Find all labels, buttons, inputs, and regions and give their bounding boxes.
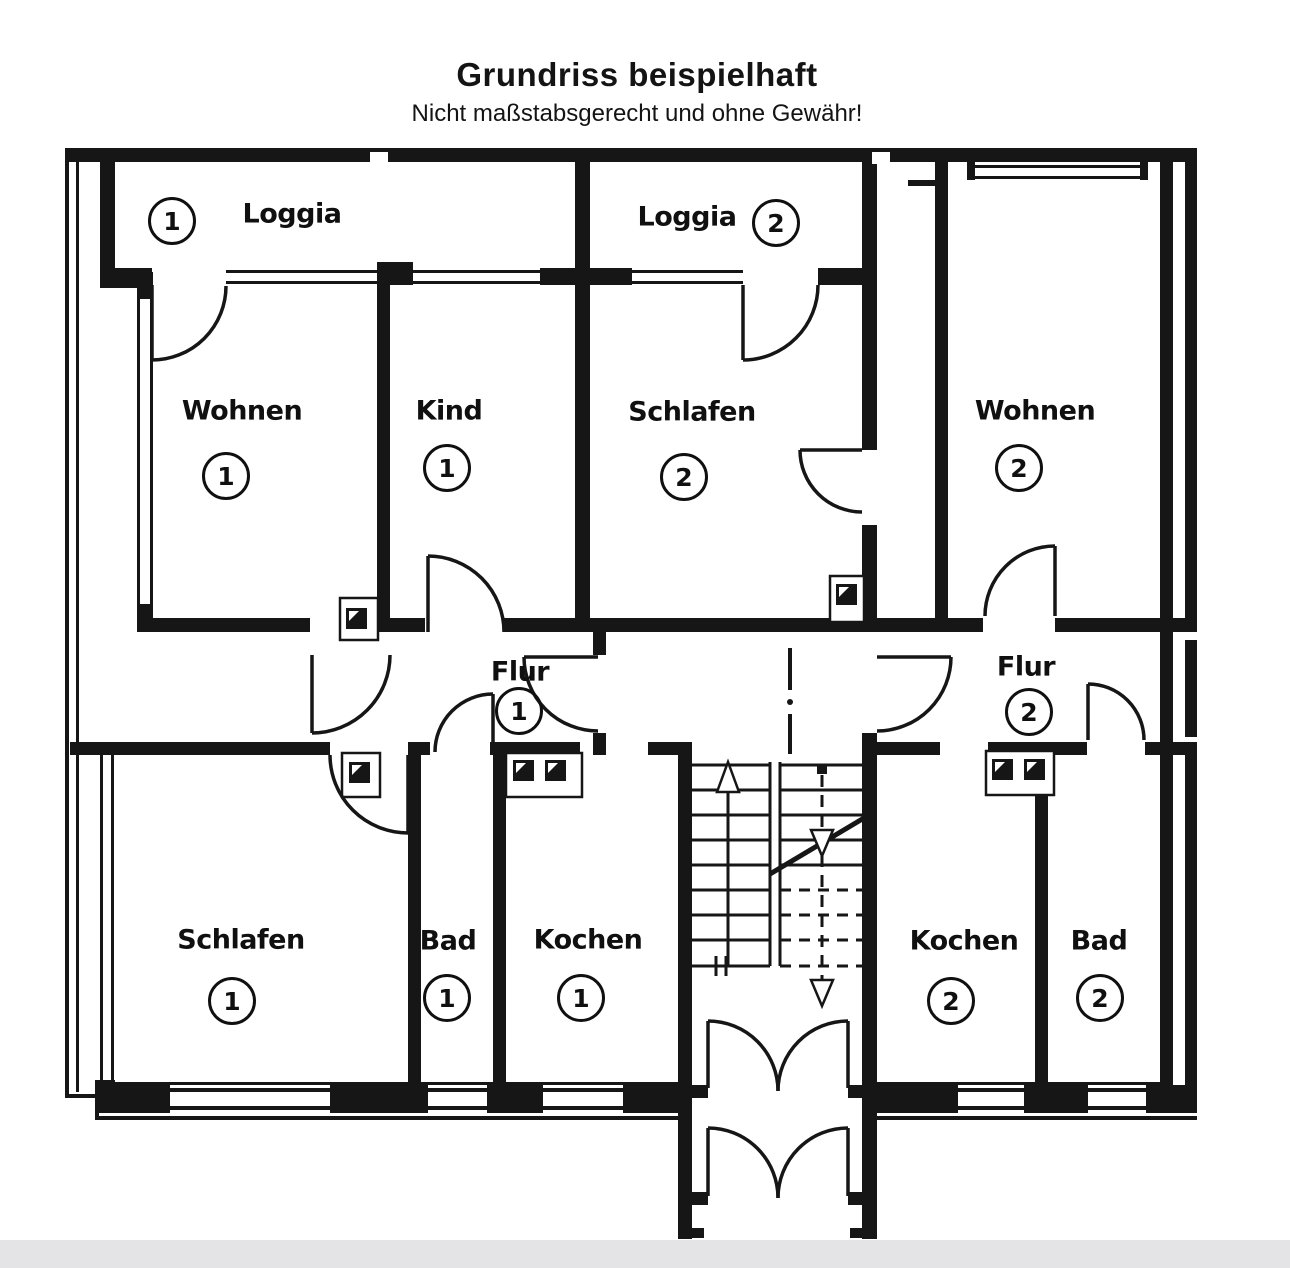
room-number-kochen-2: 2 (927, 977, 975, 1025)
room-label-flur-2: Flur (997, 652, 1055, 683)
room-label-loggia-1: Loggia (243, 199, 342, 230)
room-number-flur-2: 2 (1005, 688, 1053, 736)
room-number-loggia-1: 1 (148, 197, 196, 245)
room-label-schlafen-1: Schlafen (177, 925, 304, 956)
room-label-wohnen-2: Wohnen (975, 396, 1095, 427)
room-number-schlafen-1: 1 (208, 977, 256, 1025)
room-label-bad-2: Bad (1071, 926, 1128, 957)
room-number-flur-1: 1 (495, 687, 543, 735)
room-number-bad-2: 2 (1076, 974, 1124, 1022)
room-number-bad-1: 1 (423, 974, 471, 1022)
room-number-kochen-1: 1 (557, 974, 605, 1022)
room-label-kochen-2: Kochen (910, 926, 1019, 957)
stair-arrowheads (717, 762, 833, 1006)
room-number-kind-1: 1 (423, 444, 471, 492)
section-line (787, 648, 793, 754)
floorplan-drawing (0, 0, 1290, 1268)
room-label-flur-1: Flur (491, 657, 549, 688)
room-number-loggia-2: 2 (752, 199, 800, 247)
window-bottom-bar (0, 1240, 1290, 1268)
floorplan-page: Grundriss beispielhaft Nicht maßstabsger… (0, 0, 1290, 1268)
staircase (692, 648, 864, 1006)
room-label-bad-1: Bad (420, 926, 477, 957)
windows-layer (170, 162, 1148, 1110)
room-number-schlafen-2: 2 (660, 453, 708, 501)
room-number-wohnen-2: 2 (995, 444, 1043, 492)
room-number-wohnen-1: 1 (202, 452, 250, 500)
stair-down-start-mark (817, 766, 827, 774)
room-label-kochen-1: Kochen (534, 925, 643, 956)
room-label-schlafen-2: Schlafen (628, 397, 755, 428)
entrance-doors (708, 1021, 848, 1198)
room-label-loggia-2: Loggia (638, 202, 737, 233)
room-label-wohnen-1: Wohnen (182, 396, 302, 427)
room-label-kind-1: Kind (416, 396, 483, 427)
